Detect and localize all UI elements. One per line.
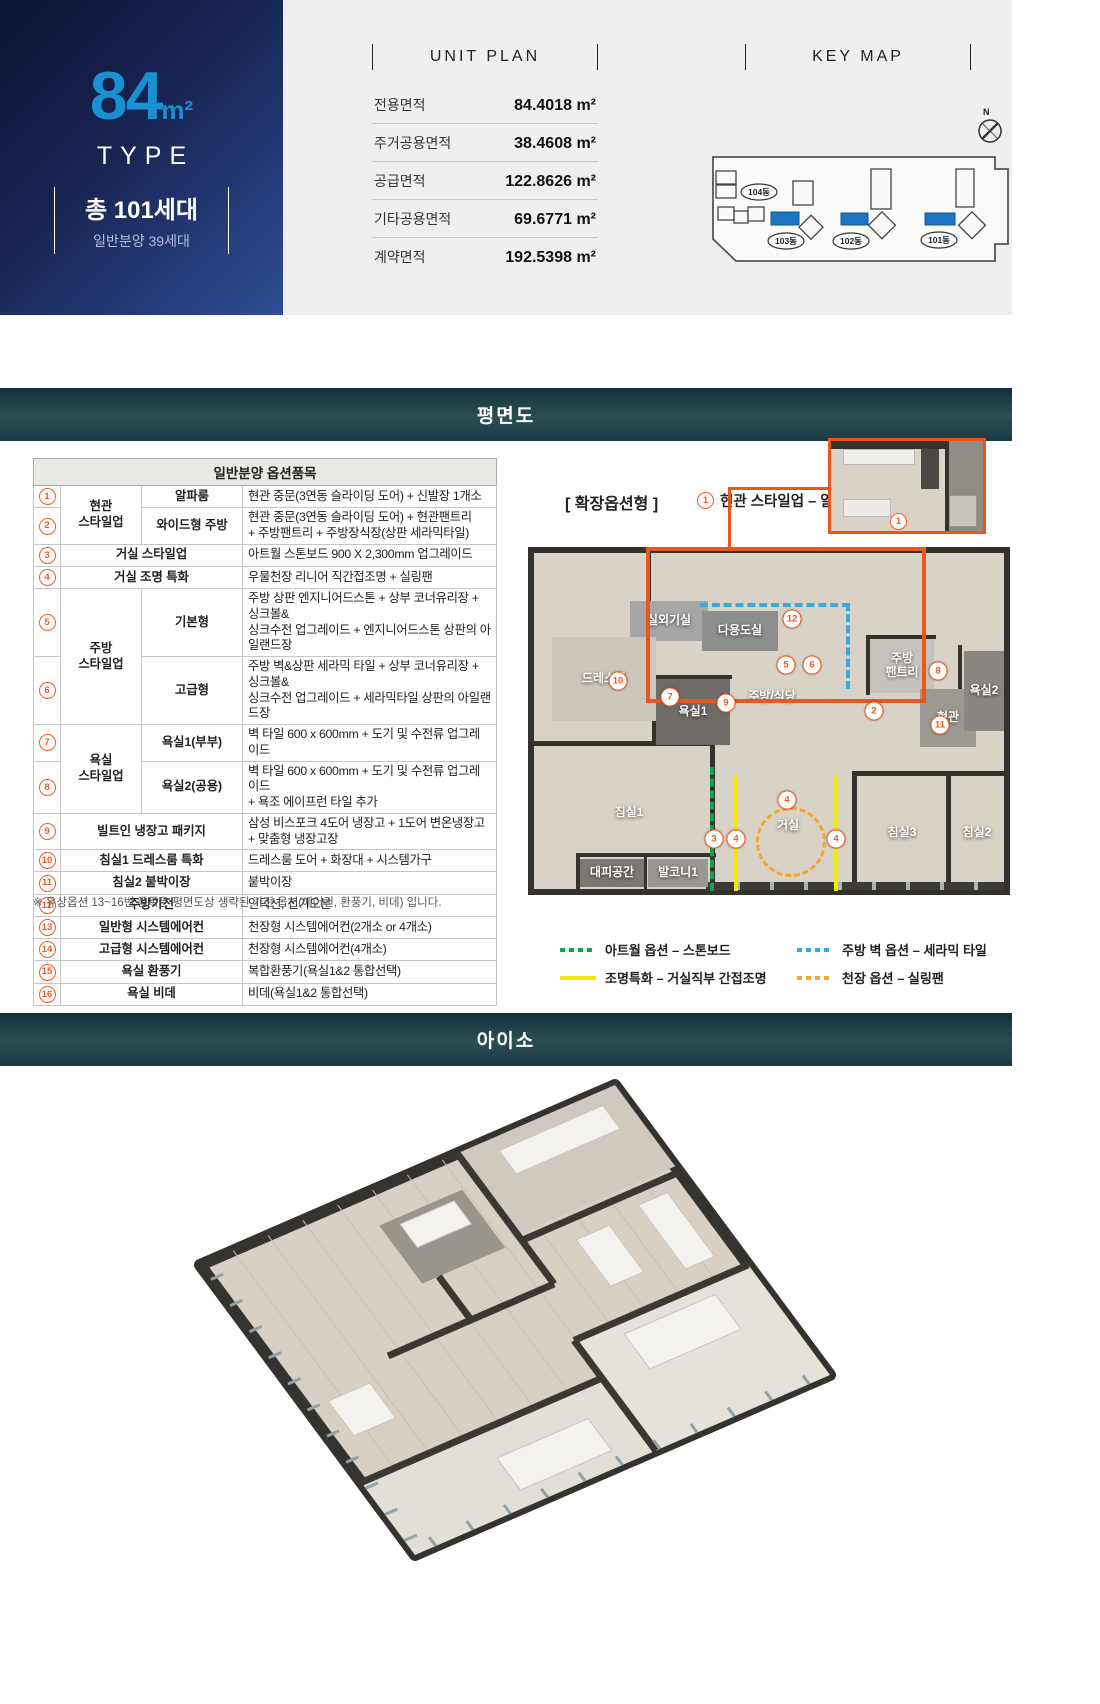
option-row: 14고급형 시스템에어컨천장형 시스템에어컨(4개소) xyxy=(34,939,497,961)
key-map-header: KEY MAP xyxy=(745,44,971,70)
floorplan-section-title: 평면도 xyxy=(477,401,535,428)
floorplan-section: 일반분양 옵션품목1현관 스타일업알파룸현관 중문(3연동 슬라이딩 도어) +… xyxy=(0,441,1012,1013)
isometric-floorplan-image xyxy=(150,1076,870,1636)
option-description: 벽 타일 600 x 600mm + 도기 및 수전류 업그레이드 xyxy=(243,725,497,761)
option-description: 복합환풍기(욕실1&2 통합선택) xyxy=(243,961,497,983)
ceiling-fan-option-circle xyxy=(756,807,826,877)
room-label: 드레스룸 xyxy=(552,637,656,721)
option-number-badge: 4 xyxy=(39,569,56,586)
option-marker-badge: 12 xyxy=(783,610,802,629)
option-description: 드레스룸 도어 + 화장대 + 시스템가구 xyxy=(243,850,497,872)
option-category: 욕실1(부부) xyxy=(142,725,243,761)
unit-plan-row: 주거공용면적38.4608 m² xyxy=(372,124,598,162)
area-value: 122.8626 m² xyxy=(505,173,596,191)
divider xyxy=(597,44,598,70)
unit-plan-row: 공급면적122.8626 m² xyxy=(372,162,598,200)
room-label: 침실2 xyxy=(950,785,1004,881)
option-description: 우물천장 리니어 직간접조명 + 실링팬 xyxy=(243,566,497,588)
unit-type-box: 84m² TYPE 총 101세대 일반분양 39세대 xyxy=(0,0,283,315)
room-name: 대피공간 xyxy=(590,866,634,880)
legend-label: 주방 벽 옵션 – 세라믹 타일 xyxy=(842,940,987,959)
legend-item: 천장 옵션 – 실링팬 xyxy=(797,968,987,987)
option-number-badge: 13 xyxy=(39,919,56,936)
area-unit: m² xyxy=(161,95,193,125)
unit-plan-row: 계약면적192.5398 m² xyxy=(372,238,598,275)
room-label: 침실1 xyxy=(554,753,704,873)
legend-swatch xyxy=(560,976,596,980)
option-description: 현관 중문(3연동 슬라이딩 도어) + 신발장 1개소 xyxy=(243,486,497,508)
divider xyxy=(372,44,373,70)
legend-label: 조명특화 – 거실직부 간접조명 xyxy=(605,968,767,987)
option-number-badge: 10 xyxy=(39,852,56,869)
option-marker-badge: 6 xyxy=(803,656,822,675)
unit-area-number: 84m² xyxy=(90,62,193,130)
legend-label: 아트월 옵션 – 스톤보드 xyxy=(605,940,731,959)
area-value: 192.5398 m² xyxy=(505,249,596,267)
option-marker-badge: 4 xyxy=(827,830,846,849)
option-category: 욕실 비데 xyxy=(61,983,243,1005)
option-marker-badge: 3 xyxy=(705,830,724,849)
option-row: 9빌트인 냉장고 패키지삼성 비스포크 4도어 냉장고 + 1도어 변온냉장고 … xyxy=(34,813,497,849)
floorplan-legend: 아트월 옵션 – 스톤보드주방 벽 옵션 – 세라믹 타일조명특화 – 거실직부… xyxy=(560,940,987,987)
legend-swatch xyxy=(560,948,596,952)
option-category: 빌트인 냉장고 패키지 xyxy=(61,813,243,849)
option-marker-badge: 5 xyxy=(777,656,796,675)
room-name: 침실2 xyxy=(963,826,992,840)
option-description: 벽 타일 600 x 600mm + 도기 및 수전류 업그레이드 + 욕조 에… xyxy=(243,761,497,813)
option-description: 삼성 비스포크 4도어 냉장고 + 1도어 변온냉장고 + 맞춤형 냉장고장 xyxy=(243,813,497,849)
balcony-windows xyxy=(706,882,1004,890)
inset-connector-line xyxy=(728,487,828,490)
iso-section-bar: 아이소 xyxy=(0,1013,1012,1066)
option-description: 아트월 스톤보드 900 X 2,300mm 업그레이드 xyxy=(243,544,497,566)
option-row: 1현관 스타일업알파룸현관 중문(3연동 슬라이딩 도어) + 신발장 1개소 xyxy=(34,486,497,508)
option-category: 주방 스타일업 xyxy=(61,589,142,725)
option-category: 욕실2(공용) xyxy=(142,761,243,813)
isometric-floorplan-svg xyxy=(150,1076,870,1636)
general-sale-households: 일반분양 39세대 xyxy=(85,231,198,251)
divider xyxy=(745,44,746,70)
option-category: 침실1 드레스룸 특화 xyxy=(61,850,243,872)
option1-number-badge: 1 xyxy=(697,492,714,509)
svg-text:N: N xyxy=(983,107,990,117)
room-name: 침실1 xyxy=(615,806,644,820)
option-row: 13일반형 시스템에어컨천장형 시스템에어컨(2개소 or 4개소) xyxy=(34,916,497,938)
option-category: 고급형 xyxy=(142,657,243,725)
inset-number-badge: 1 xyxy=(890,513,907,530)
unit-plan-title: UNIT PLAN xyxy=(430,48,540,66)
option-number-badge: 15 xyxy=(39,964,56,981)
room-label: 욕실2 xyxy=(964,651,1004,731)
room-label: 침실3 xyxy=(860,785,944,881)
option-category: 알파룸 xyxy=(142,486,243,508)
room-name: 욕실1 xyxy=(679,705,708,719)
option-row: 3거실 스타일업아트월 스톤보드 900 X 2,300mm 업그레이드 xyxy=(34,544,497,566)
option-marker-badge: 4 xyxy=(727,830,746,849)
legend-item: 아트월 옵션 – 스톤보드 xyxy=(560,940,797,959)
highlighted-buildings xyxy=(771,212,955,225)
options-table-title: 일반분양 옵션품목 xyxy=(34,459,497,486)
legend-item: 조명특화 – 거실직부 간접조명 xyxy=(560,968,797,987)
option-category: 침실2 붙박이장 xyxy=(61,872,243,894)
option-marker-badge: 10 xyxy=(609,672,628,691)
option-marker-badge: 4 xyxy=(778,791,797,810)
unit-plan-row: 기타공용면적69.6771 m² xyxy=(372,200,598,238)
room-name: 침실3 xyxy=(888,826,917,840)
households-block: 총 101세대 일반분양 39세대 xyxy=(54,187,229,254)
options-footnote: ※ 유상옵션 13~16번 품목은 평면도상 생략된 가전 옵션(에어컨, 환풍… xyxy=(33,894,442,910)
option-marker-badge: 8 xyxy=(929,662,948,681)
option-row: 5주방 스타일업기본형주방 상판 엔지니어드스톤 + 상부 코너유리장 + 싱크… xyxy=(34,589,497,657)
option-number-badge: 6 xyxy=(39,682,56,699)
option-number-badge: 3 xyxy=(39,547,56,564)
top-summary-band: 84m² TYPE 총 101세대 일반분양 39세대 UNIT PLAN 전용… xyxy=(0,0,1012,315)
option-marker-badge: 9 xyxy=(717,694,736,713)
svg-text:103동: 103동 xyxy=(775,236,797,246)
option-number-badge: 14 xyxy=(39,941,56,958)
option-category: 현관 스타일업 xyxy=(61,486,142,545)
area-value: 84.4018 m² xyxy=(514,97,596,115)
option-marker-badge: 2 xyxy=(865,702,884,721)
option-row: 11침실2 붙박이장붙박이장 xyxy=(34,872,497,894)
option-number-badge: 2 xyxy=(39,518,56,535)
option-description: 현관 중문(3연동 슬라이딩 도어) + 현관팬트리 + 주방팬트리 + 주방장… xyxy=(243,508,497,544)
area-label: 기타공용면적 xyxy=(374,209,451,229)
svg-text:104동: 104동 xyxy=(748,187,770,197)
legend-swatch xyxy=(797,948,833,952)
area-label: 주거공용면적 xyxy=(374,133,451,153)
svg-text:102동: 102동 xyxy=(840,236,862,246)
room-name: 욕실2 xyxy=(970,684,999,698)
room-label: 대피공간 xyxy=(580,859,644,887)
option-row: 16욕실 비데비데(욕실1&2 통합선택) xyxy=(34,983,497,1005)
floorplan-section-bar: 평면도 xyxy=(0,388,1012,441)
option-category: 거실 조명 특화 xyxy=(61,566,243,588)
option-row: 10침실1 드레스룸 특화드레스룸 도어 + 화장대 + 시스템가구 xyxy=(34,850,497,872)
option-marker-badge: 7 xyxy=(661,688,680,707)
option-row: 15욕실 환풍기복합환풍기(욕실1&2 통합선택) xyxy=(34,961,497,983)
option-number-badge: 1 xyxy=(39,488,56,505)
area-label: 공급면적 xyxy=(374,171,426,191)
area-number: 84 xyxy=(90,58,162,134)
key-map-title: KEY MAP xyxy=(812,48,904,66)
option-category: 기본형 xyxy=(142,589,243,657)
option-row: 4거실 조명 특화우물천장 리니어 직간접조명 + 실링팬 xyxy=(34,566,497,588)
option-category: 일반형 시스템에어컨 xyxy=(61,916,243,938)
option-description: 주방 상판 엔지니어드스톤 + 상부 코너유리장 + 싱크볼& 싱크수전 업그레… xyxy=(243,589,497,657)
option-category: 욕실 환풍기 xyxy=(61,961,243,983)
unit-plan-table: 전용면적84.4018 m²주거공용면적38.4608 m²공급면적122.86… xyxy=(372,86,598,275)
option-description: 주방 벽&상판 세라믹 타일 + 상부 코너유리장 + 싱크볼& 싱크수전 업그… xyxy=(243,657,497,725)
iso-section xyxy=(0,1066,1012,1704)
option-category: 고급형 시스템에어컨 xyxy=(61,939,243,961)
option-description: 비데(욕실1&2 통합선택) xyxy=(243,983,497,1005)
option-marker-badge: 11 xyxy=(931,716,950,735)
key-map-site-plan: N 104동 103동 xyxy=(650,95,1015,273)
legend-item: 주방 벽 옵션 – 세라믹 타일 xyxy=(797,940,987,959)
option-number-badge: 16 xyxy=(39,986,56,1003)
option-category: 와이드형 주방 xyxy=(142,508,243,544)
expansion-type-label: [ 확장옵션형 ] xyxy=(565,490,658,514)
option-category: 욕실 스타일업 xyxy=(61,725,142,814)
unit-plan-header: UNIT PLAN xyxy=(372,44,598,70)
area-label: 계약면적 xyxy=(374,247,426,267)
option-description: 천장형 시스템에어컨(4개소) xyxy=(243,939,497,961)
compass-icon: N xyxy=(979,107,1001,142)
iso-section-title: 아이소 xyxy=(477,1026,535,1053)
legend-label: 천장 옵션 – 실링팬 xyxy=(842,968,944,987)
legend-swatch xyxy=(797,976,833,980)
option-category: 거실 스타일업 xyxy=(61,544,243,566)
option-number-badge: 8 xyxy=(39,779,56,796)
option-row: 7욕실 스타일업욕실1(부부)벽 타일 600 x 600mm + 도기 및 수… xyxy=(34,725,497,761)
option-number-badge: 5 xyxy=(39,614,56,631)
inset-connector-line xyxy=(728,487,731,550)
area-value: 38.4608 m² xyxy=(514,135,596,153)
option-description: 붙박이장 xyxy=(243,872,497,894)
total-households: 총 101세대 xyxy=(85,190,198,225)
unit-plan-row: 전용면적84.4018 m² xyxy=(372,86,598,124)
floorplan-image: 실외기실다용도실드레스룸욕실1주방/식당주방 팬트리현관욕실2침실1거실침실3침… xyxy=(528,547,1010,895)
option-number-badge: 9 xyxy=(39,823,56,840)
room-name: 발코니1 xyxy=(658,866,698,880)
option-number-badge: 7 xyxy=(39,734,56,751)
area-label: 전용면적 xyxy=(374,95,426,115)
option-description: 천장형 시스템에어컨(2개소 or 4개소) xyxy=(243,916,497,938)
area-value: 69.6771 m² xyxy=(514,211,596,229)
divider xyxy=(970,44,971,70)
options-table: 일반분양 옵션품목1현관 스타일업알파룸현관 중문(3연동 슬라이딩 도어) +… xyxy=(33,458,497,1006)
alpharoom-inset-image xyxy=(828,438,986,534)
option-number-badge: 11 xyxy=(39,875,56,892)
room-label: 발코니1 xyxy=(648,859,708,887)
svg-text:101동: 101동 xyxy=(928,235,950,245)
type-label: TYPE xyxy=(89,142,194,171)
